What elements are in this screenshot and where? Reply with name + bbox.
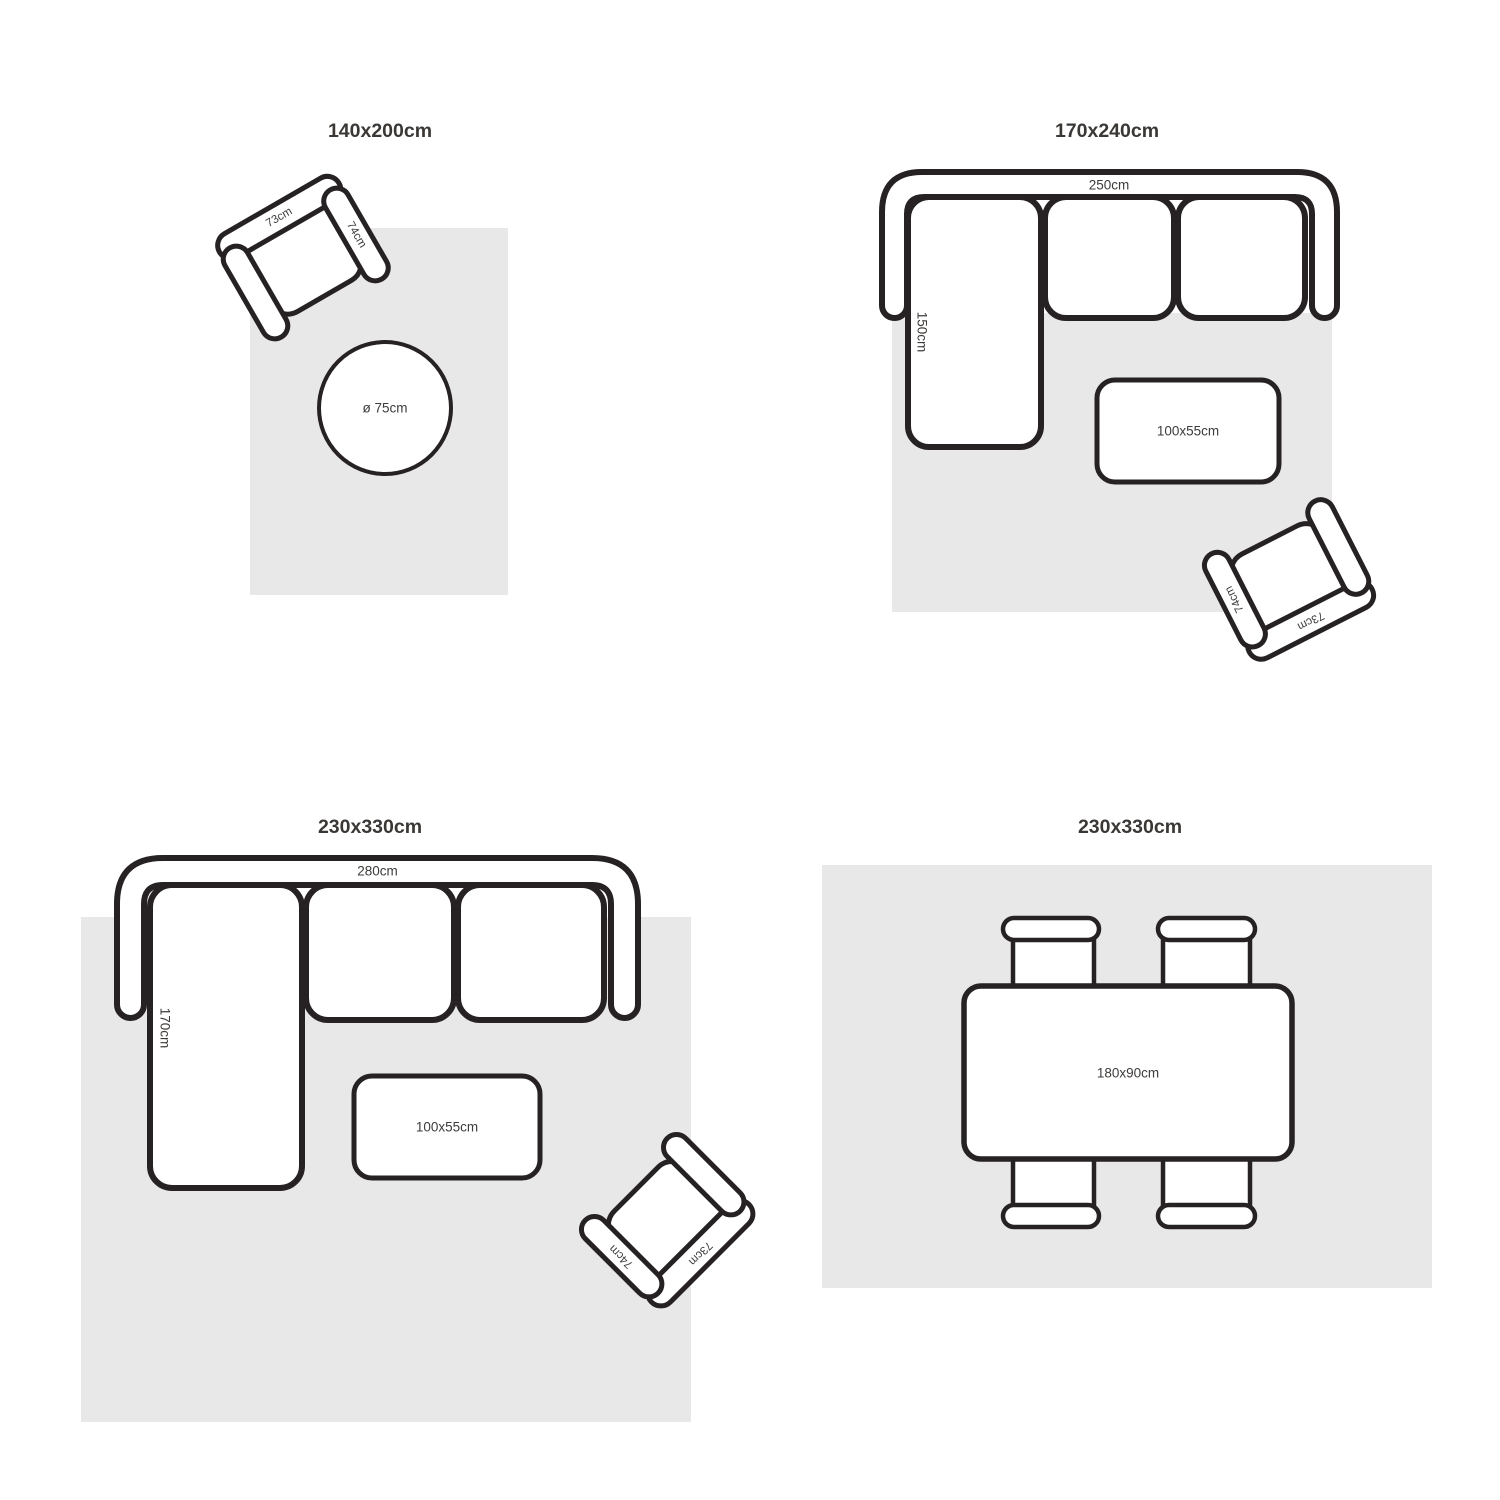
chair-backrest	[1003, 918, 1099, 940]
coffee-table: 100x55cm	[1097, 380, 1279, 482]
round-table-dimension: ø 75cm	[362, 401, 407, 416]
sofa-seat-cushion	[1178, 197, 1305, 318]
sofa-depth-dimension: 170cm	[158, 1008, 173, 1049]
panel-rug-140x200: 140x200cm 73cm 74cm ø 75cm	[211, 120, 508, 595]
panel-rug-230x330-dining: 230x330cm 180x90cm	[822, 816, 1432, 1288]
rug-size-guide-page: 140x200cm 73cm 74cm ø 75cm 170x240cm 250…	[0, 0, 1500, 1500]
panel-title: 140x200cm	[328, 120, 432, 142]
sofa-width-dimension: 250cm	[1089, 178, 1130, 193]
coffee-table: 100x55cm	[354, 1076, 540, 1178]
panel-title: 230x330cm	[1078, 816, 1182, 838]
panel-title: 170x240cm	[1055, 120, 1159, 142]
dining-table: 180x90cm	[964, 986, 1292, 1159]
chair-backrest	[1003, 1205, 1099, 1227]
dining-table-dimension: 180x90cm	[1097, 1066, 1159, 1081]
panel-rug-230x330-living: 230x330cm 280cm 170cm 100x55cm 73cm 74cm	[81, 816, 760, 1422]
diagram-canvas: 140x200cm 73cm 74cm ø 75cm 170x240cm 250…	[0, 0, 1500, 1500]
sofa-width-dimension: 280cm	[357, 864, 398, 879]
chair-backrest	[1158, 918, 1255, 940]
round-side-table: ø 75cm	[319, 342, 451, 474]
chair-backrest	[1158, 1205, 1255, 1227]
panel-title: 230x330cm	[318, 816, 422, 838]
coffee-table-dimension: 100x55cm	[1157, 424, 1219, 439]
coffee-table-dimension: 100x55cm	[416, 1120, 478, 1135]
sofa-seat-cushion	[306, 885, 454, 1020]
panel-rug-170x240: 170x240cm 250cm 150cm 100x55cm 73cm 74cm	[882, 120, 1380, 665]
sofa-depth-dimension: 150cm	[915, 312, 930, 353]
sofa-seat-cushion	[458, 885, 604, 1020]
sofa-seat-cushion	[1045, 197, 1174, 318]
